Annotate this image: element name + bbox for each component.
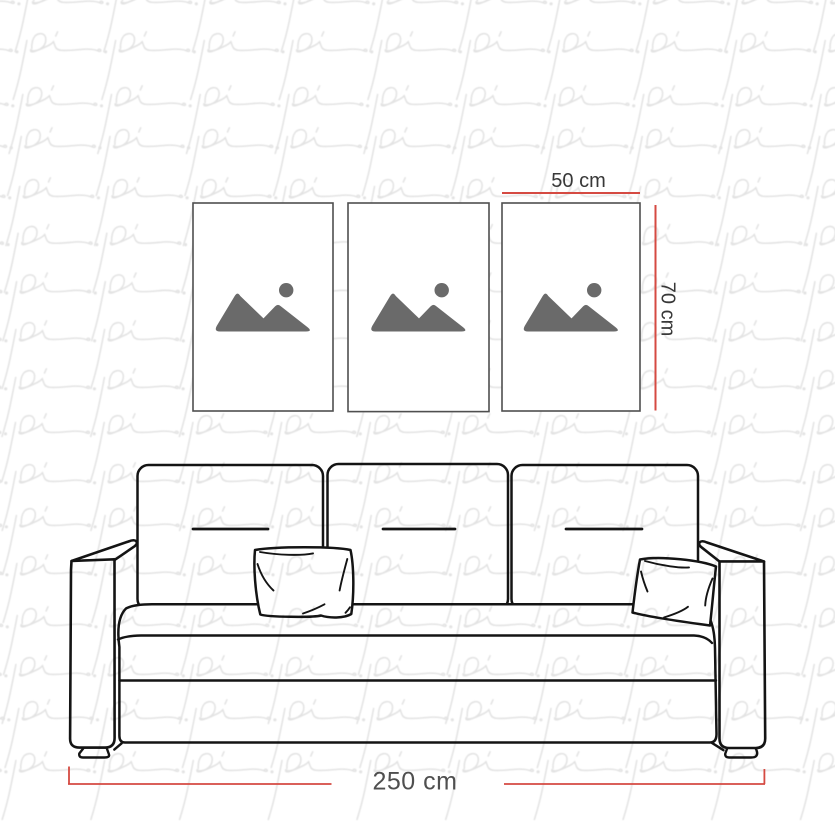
svg-text:250 cm: 250 cm [373, 768, 458, 796]
svg-text:50 cm: 50 cm [551, 170, 605, 192]
svg-text:70 cm: 70 cm [657, 282, 679, 336]
